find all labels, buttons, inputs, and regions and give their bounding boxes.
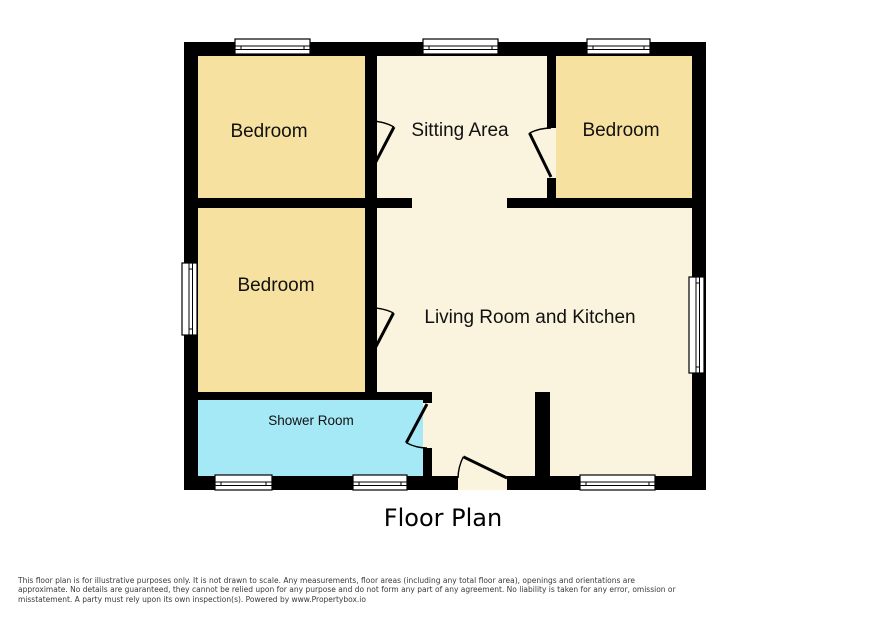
window-icon-top-2 — [423, 39, 498, 54]
floor-plan-title: Floor Plan — [0, 504, 886, 532]
room-fill-bedroom-mid-left — [198, 208, 365, 392]
window-icon-top-1 — [235, 39, 310, 54]
entrance-opening — [458, 476, 507, 490]
window-icon-bottom-2 — [353, 475, 407, 490]
room-label-living-room-kitchen: Living Room and Kitchen — [424, 307, 635, 328]
room-label-shower-room: Shower Room — [268, 413, 354, 428]
room-label-sitting-area: Sitting Area — [411, 120, 509, 141]
window-icon-bottom-3 — [580, 475, 655, 490]
window-icon-bottom-1 — [215, 475, 272, 490]
disclaimer-line-1: This floor plan is for illustrative purp… — [18, 576, 868, 585]
disclaimer-line-3: misstatement. A party must rely upon its… — [18, 595, 868, 604]
floor-plan-page: Bedroom Sitting Area Bedroom Bedroom Liv… — [0, 0, 886, 620]
room-label-bedroom-mid-left: Bedroom — [237, 275, 314, 296]
disclaimer-text: This floor plan is for illustrative purp… — [18, 576, 868, 604]
disclaimer-line-2: approximate. No details are guaranteed, … — [18, 585, 868, 594]
window-icon-top-3 — [587, 39, 650, 54]
window-icon-right — [689, 277, 704, 373]
window-icon-left — [182, 263, 197, 335]
room-label-bedroom-top-left: Bedroom — [230, 121, 307, 142]
room-fill-shower-room — [198, 400, 423, 476]
room-label-bedroom-top-right: Bedroom — [582, 120, 659, 141]
